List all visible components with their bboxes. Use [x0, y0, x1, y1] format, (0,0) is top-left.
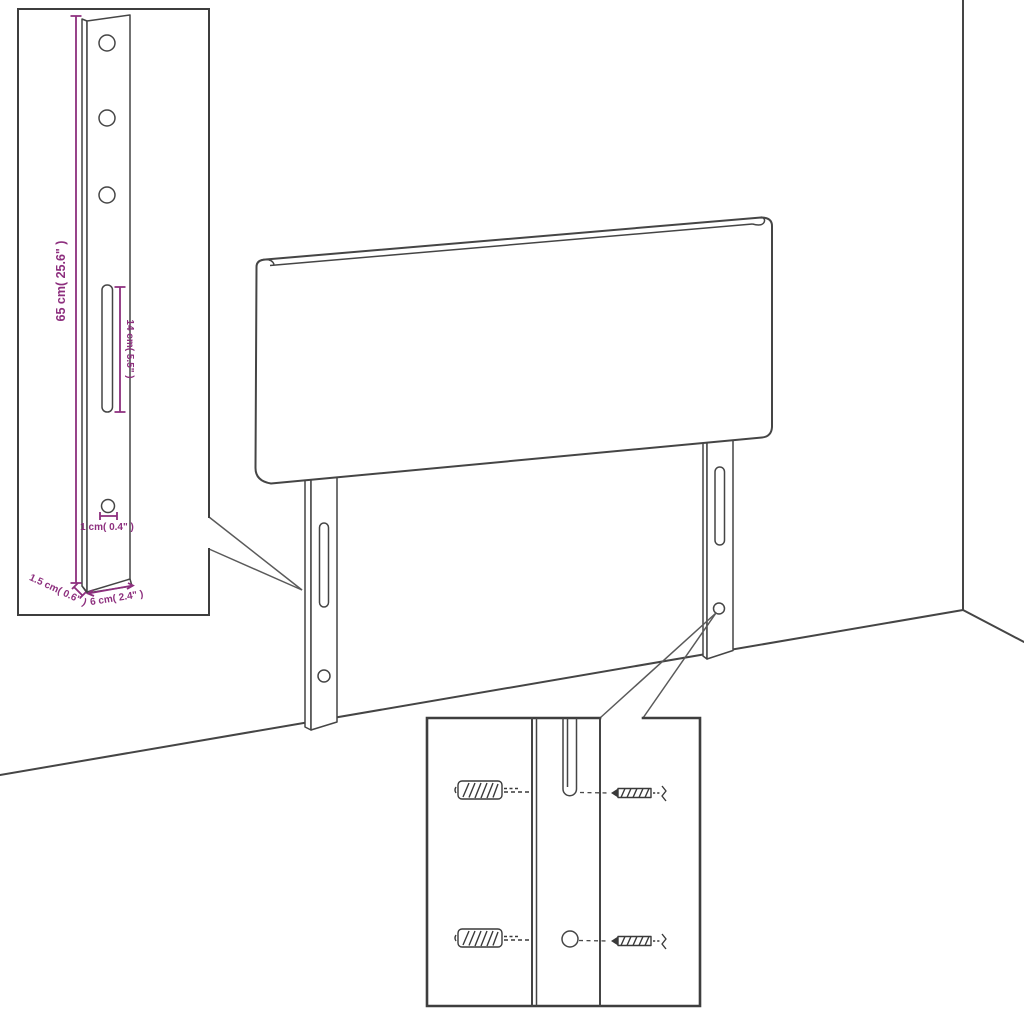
leader-hole-to-screw — [579, 941, 609, 942]
floor-line-right — [963, 610, 1024, 642]
diagram-page: 65 cm( 25.6" ) 14 cm( 5.5" ) 1 cm( 0.4" … — [0, 0, 1024, 1024]
inset-mounting-detail — [427, 718, 700, 1006]
dimension-leg-height: 65 cm( 25.6" ) — [54, 16, 82, 583]
hole-size-label: 1 cm( 0.4" ) — [80, 522, 134, 533]
mounting-leg-closeup — [532, 718, 600, 1006]
left-leg-side-face — [305, 476, 311, 730]
callout-left-leg-detail — [209, 517, 302, 590]
headboard-panel — [256, 217, 773, 484]
closeup-hole — [562, 931, 578, 947]
leg-bracket-drawing — [82, 15, 132, 593]
callout-mounting-detail — [600, 613, 716, 718]
wall-plug-top — [455, 781, 530, 799]
headboard-left-leg — [305, 474, 337, 731]
screw-bottom — [611, 934, 666, 949]
slot-length-label: 14 cm( 5.5" ) — [124, 319, 135, 378]
diagram-canvas: 65 cm( 25.6" ) 14 cm( 5.5" ) 1 cm( 0.4" … — [0, 0, 1024, 1024]
floor-line-left — [0, 610, 963, 775]
leg-height-label: 65 cm( 25.6" ) — [54, 241, 68, 322]
dimension-leg-thickness: 1.5 cm( 0.6" ) — [27, 572, 88, 608]
left-leg-front-face — [311, 474, 337, 731]
leader-slot-to-screw — [580, 793, 609, 794]
panel-outline — [256, 218, 773, 484]
leg-thickness-label: 1.5 cm( 0.6" ) — [27, 572, 88, 608]
inset-leg-detail: 65 cm( 25.6" ) 14 cm( 5.5" ) 1 cm( 0.4" … — [18, 9, 209, 615]
wall-plug-bottom — [455, 929, 530, 947]
screw-top — [611, 786, 666, 801]
closeup-slot — [563, 718, 577, 796]
